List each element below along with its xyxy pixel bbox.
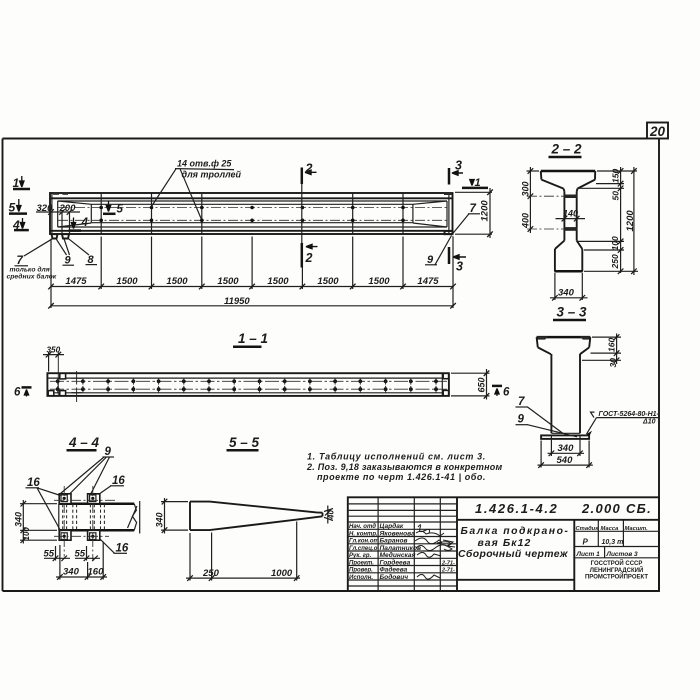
svg-text:250: 250 xyxy=(202,568,220,579)
svg-text:2.000 СБ.: 2.000 СБ. xyxy=(581,501,652,516)
svg-text:Яковенова: Яковенова xyxy=(379,530,416,537)
svg-text:Балка подкрано-: Балка подкрано- xyxy=(461,526,570,537)
svg-text:Баранов: Баранов xyxy=(380,538,408,545)
svg-text:3: 3 xyxy=(456,260,463,274)
svg-text:1475: 1475 xyxy=(65,276,87,287)
svg-text:20: 20 xyxy=(649,124,666,139)
svg-text:1: 1 xyxy=(13,176,20,190)
svg-text:1000: 1000 xyxy=(271,568,293,579)
svg-text:140: 140 xyxy=(563,209,578,219)
svg-text:Нач. отд: Нач. отд xyxy=(349,524,376,530)
svg-text:55: 55 xyxy=(44,549,55,560)
svg-text:Провер.: Провер. xyxy=(349,568,373,574)
svg-text:6: 6 xyxy=(14,387,21,399)
svg-text:400: 400 xyxy=(520,213,530,229)
svg-text:для троллей: для троллей xyxy=(182,170,242,180)
svg-text:14 отв.ф 25: 14 отв.ф 25 xyxy=(177,159,232,169)
svg-text:160: 160 xyxy=(607,338,617,352)
svg-text:7: 7 xyxy=(518,396,525,408)
svg-text:2-71-: 2-71- xyxy=(441,568,455,574)
svg-text:250: 250 xyxy=(610,254,620,269)
svg-text:4: 4 xyxy=(81,217,89,229)
svg-text:9: 9 xyxy=(105,446,112,458)
svg-text:ЛЕНИНГРАДСКИЙ: ЛЕНИНГРАДСКИЙ xyxy=(590,566,644,574)
svg-text:Фадеева: Фадеева xyxy=(380,566,408,574)
svg-text:150: 150 xyxy=(611,169,621,183)
svg-text:2: 2 xyxy=(305,251,313,265)
svg-text:4: 4 xyxy=(12,218,20,232)
svg-text:вая Бк12: вая Бк12 xyxy=(478,538,532,549)
svg-text:6: 6 xyxy=(503,387,510,399)
svg-text:5 – 5: 5 – 5 xyxy=(229,435,260,450)
svg-text:Палатников: Палатников xyxy=(380,545,422,552)
svg-text:30: 30 xyxy=(608,358,618,368)
svg-text:Стадия: Стадия xyxy=(576,526,600,532)
svg-text:300: 300 xyxy=(520,181,530,196)
svg-text:5: 5 xyxy=(9,201,16,215)
svg-text:340: 340 xyxy=(14,512,24,527)
svg-text:1200: 1200 xyxy=(625,210,636,232)
svg-text:3: 3 xyxy=(455,159,462,173)
svg-text:ГОСТ-5264-80-Н1-: ГОСТ-5264-80-Н1- xyxy=(599,411,660,418)
svg-text:1500: 1500 xyxy=(267,276,289,287)
svg-text:10,3 т: 10,3 т xyxy=(602,539,624,546)
svg-text:Исполн.: Исполн. xyxy=(349,575,373,581)
svg-text:50: 50 xyxy=(611,191,621,201)
svg-text:100: 100 xyxy=(610,236,620,250)
svg-text:Р: Р xyxy=(583,538,589,547)
svg-text:Сборочный чертеж: Сборочный чертеж xyxy=(458,548,569,560)
svg-text:1500: 1500 xyxy=(368,276,390,287)
svg-text:Мединская: Мединская xyxy=(380,551,416,559)
svg-text:1200: 1200 xyxy=(480,200,491,222)
svg-text:Масшт.: Масшт. xyxy=(625,526,649,532)
svg-text:1500: 1500 xyxy=(116,276,138,287)
svg-text:Рук. гр.: Рук. гр. xyxy=(349,553,372,559)
svg-text:2: 2 xyxy=(305,162,313,176)
svg-text:9: 9 xyxy=(518,414,525,426)
svg-text:1500: 1500 xyxy=(166,276,188,287)
svg-text:4 – 4: 4 – 4 xyxy=(68,435,100,450)
svg-text:11950: 11950 xyxy=(224,296,250,307)
svg-text:ПРОМСТРОЙПРОЕКТ: ПРОМСТРОЙПРОЕКТ xyxy=(585,573,648,581)
svg-text:1.426.1-4.2: 1.426.1-4.2 xyxy=(475,501,558,516)
svg-text:Масса: Масса xyxy=(601,526,620,532)
svg-text:Гордеева: Гордеева xyxy=(380,558,411,566)
svg-text:1500: 1500 xyxy=(217,276,239,287)
svg-text:2. Поз. 9,18 заказываются в ко: 2. Поз. 9,18 заказываются в конкретном xyxy=(306,462,502,472)
svg-text:540: 540 xyxy=(557,455,574,466)
svg-text:5: 5 xyxy=(117,204,124,216)
svg-text:1475: 1475 xyxy=(417,276,439,287)
svg-text:340: 340 xyxy=(558,288,575,299)
svg-text:Δ10: Δ10 xyxy=(642,419,656,426)
svg-text:650: 650 xyxy=(477,377,487,392)
svg-text:340: 340 xyxy=(558,443,575,454)
svg-text:1: 1 xyxy=(475,177,481,189)
svg-text:ГОССТРОЙ СССР: ГОССТРОЙ СССР xyxy=(591,559,643,567)
svg-text:Гл.спец.о: Гл.спец.о xyxy=(349,546,378,552)
svg-text:350: 350 xyxy=(47,346,61,355)
svg-text:только для: только для xyxy=(10,266,50,274)
svg-text:Гл.кон.от: Гл.кон.от xyxy=(349,539,380,545)
svg-text:средних балок: средних балок xyxy=(7,273,57,281)
svg-text:Н. контр.: Н. контр. xyxy=(349,531,378,537)
svg-text:40: 40 xyxy=(327,510,336,520)
svg-text:1 – 1: 1 – 1 xyxy=(238,331,268,346)
svg-text:2-71-: 2-71- xyxy=(441,560,455,566)
svg-text:проекте по черт 1.426.1-41 | о: проекте по черт 1.426.1-41 | обо. xyxy=(317,472,486,482)
svg-text:Листов 3: Листов 3 xyxy=(606,551,638,558)
svg-text:1500: 1500 xyxy=(317,276,339,287)
svg-text:55: 55 xyxy=(75,549,86,560)
svg-text:Бодович: Бодович xyxy=(380,573,409,581)
svg-text:340: 340 xyxy=(63,567,80,578)
svg-text:100: 100 xyxy=(22,527,31,541)
svg-text:Проект.: Проект. xyxy=(349,560,374,566)
svg-text:2 – 2: 2 – 2 xyxy=(551,142,583,157)
svg-text:Цардак: Цардак xyxy=(380,522,404,530)
svg-text:160: 160 xyxy=(88,567,105,578)
svg-text:3 – 3: 3 – 3 xyxy=(557,305,588,320)
svg-text:340: 340 xyxy=(154,512,164,527)
svg-text:Лист 1: Лист 1 xyxy=(576,551,601,558)
svg-text:1. Таблицу исполнений см. лис: 1. Таблицу исполнений см. лист 3. xyxy=(307,452,486,462)
